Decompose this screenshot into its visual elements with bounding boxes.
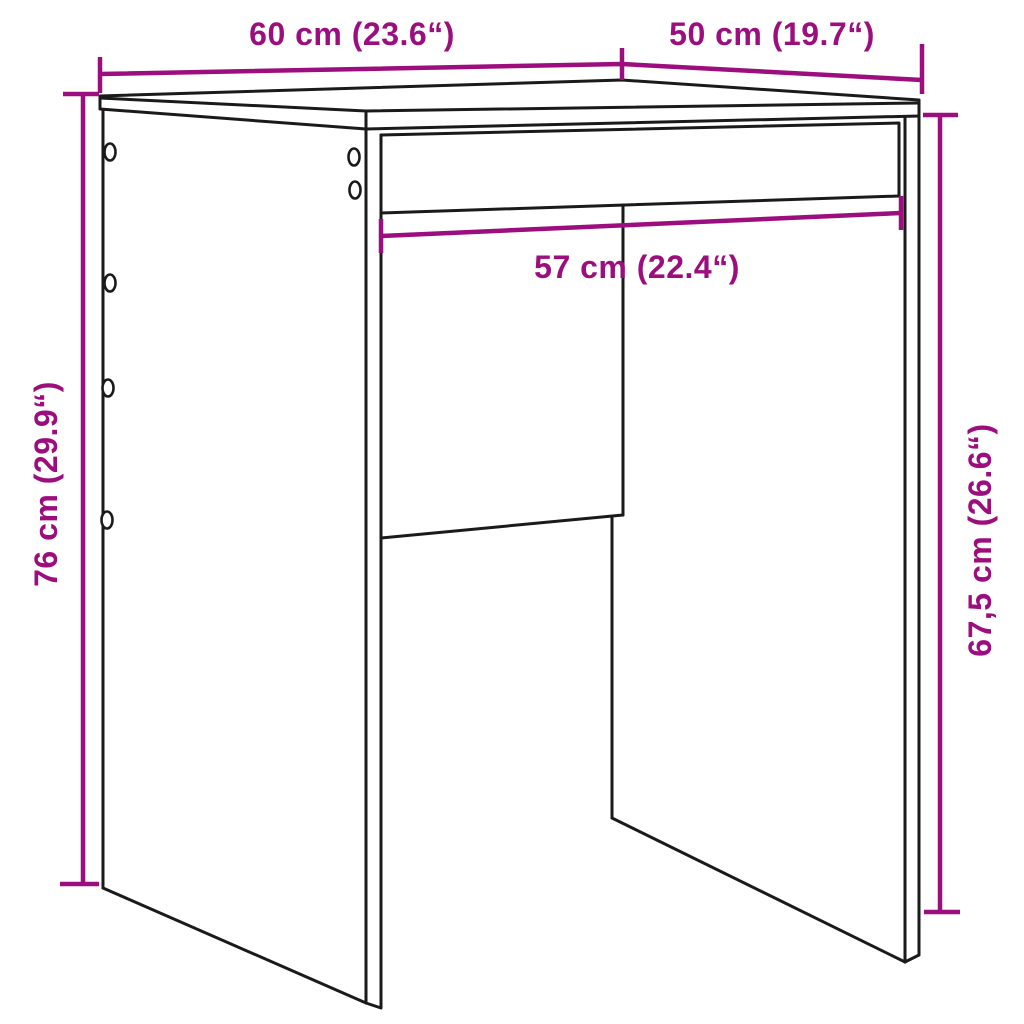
right-panel-bottom-edge xyxy=(612,818,905,962)
dimension-annotations xyxy=(60,44,960,912)
screw-hole xyxy=(103,380,114,397)
apron-outline xyxy=(381,123,899,213)
right-side-panel xyxy=(612,116,919,962)
front-apron xyxy=(381,123,899,213)
label-top-depth: 50 cm (19.7“) xyxy=(669,16,875,52)
left-panel-bottom-edge xyxy=(103,888,366,1003)
back-panel-bottom-edge xyxy=(381,515,623,538)
label-top-width: 60 cm (23.6“) xyxy=(249,16,455,52)
dimension-labels: 60 cm (23.6“) 50 cm (19.7“) 57 cm (22.4“… xyxy=(28,16,998,657)
top-dimension-line xyxy=(100,64,922,80)
dimension-diagram: 60 cm (23.6“) 50 cm (19.7“) 57 cm (22.4“… xyxy=(0,0,1024,1024)
side-height-dimension xyxy=(923,115,960,912)
diagram-canvas: 60 cm (23.6“) 50 cm (19.7“) 57 cm (22.4“… xyxy=(0,0,1024,1024)
screw-hole xyxy=(105,144,116,161)
inner-width-line xyxy=(381,213,901,236)
height-dimension xyxy=(60,94,99,884)
tabletop xyxy=(100,80,919,129)
screw-hole xyxy=(102,512,113,529)
right-panel-thickness-edge xyxy=(905,116,919,962)
label-total-height: 76 cm (29.9“) xyxy=(28,381,64,587)
label-side-height: 67,5 cm (26.6“) xyxy=(962,423,998,656)
label-inner-width: 57 cm (22.4“) xyxy=(534,249,740,285)
left-side-panel xyxy=(103,110,381,1008)
screw-hole xyxy=(349,149,360,166)
screw-hole xyxy=(350,182,361,199)
screw-holes xyxy=(102,144,361,529)
screw-hole xyxy=(105,275,116,292)
left-panel-thickness-edge xyxy=(366,135,381,1008)
